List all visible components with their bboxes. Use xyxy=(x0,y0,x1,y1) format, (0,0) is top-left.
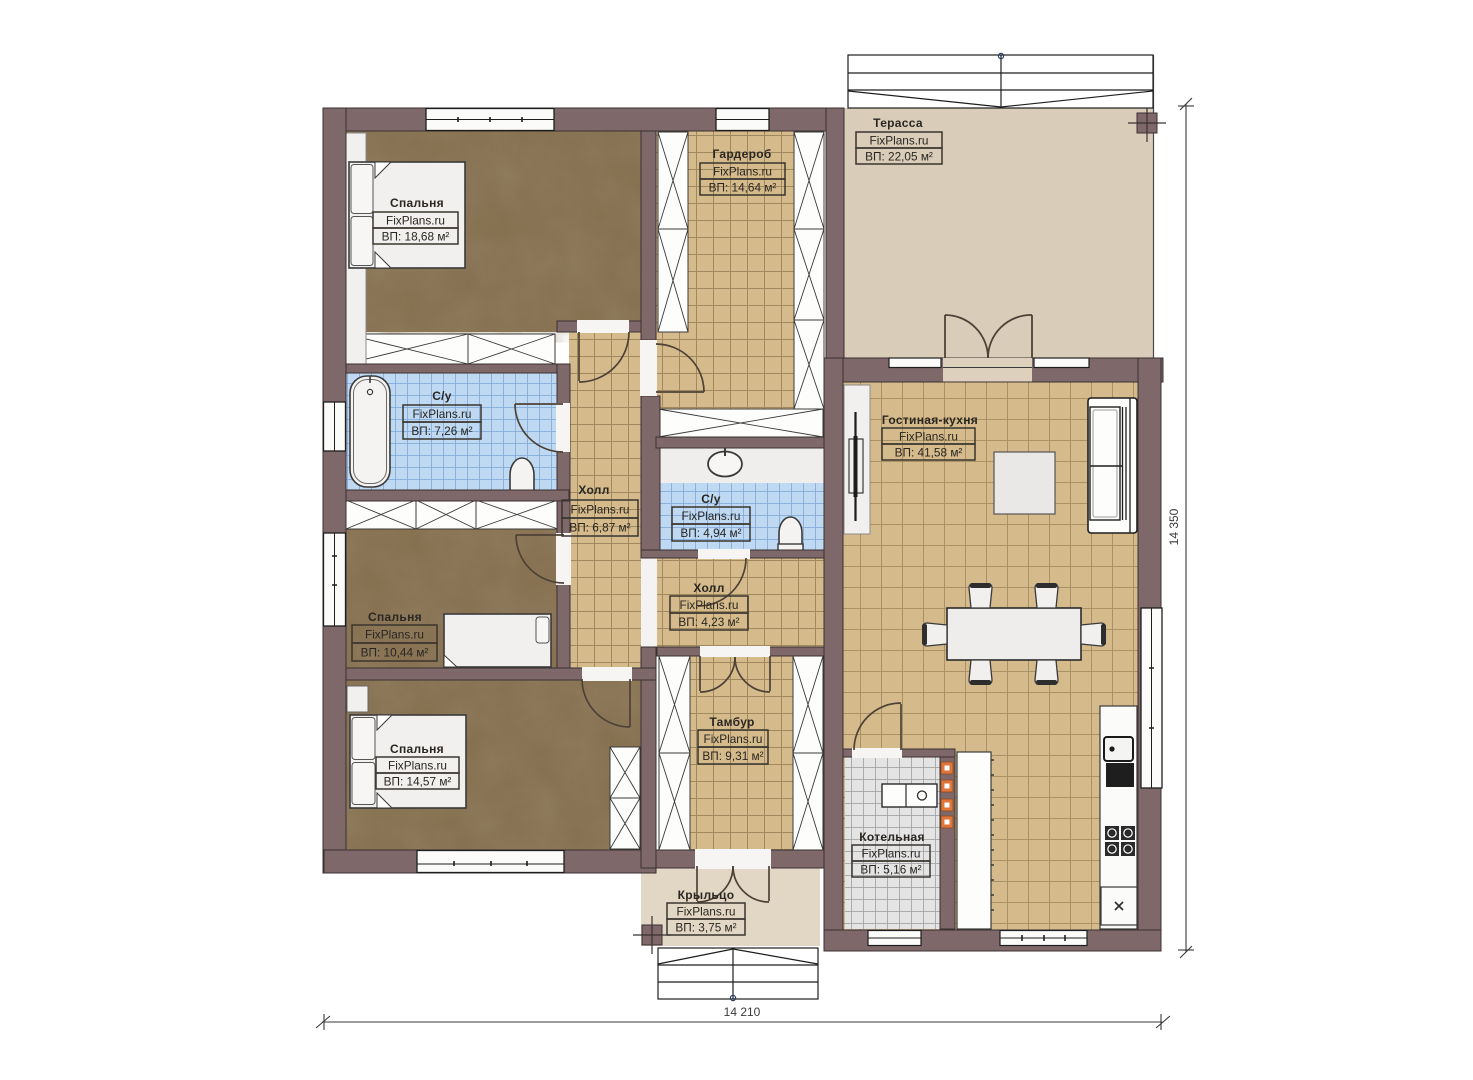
svg-text:ВП: 9,31 м²: ВП: 9,31 м² xyxy=(702,749,763,763)
svg-text:Тамбур: Тамбур xyxy=(709,715,754,729)
svg-text:FixPlans.ru: FixPlans.ru xyxy=(386,214,445,228)
svg-text:ВП: 10,44 м²: ВП: 10,44 м² xyxy=(361,646,429,660)
svg-text:Гардероб: Гардероб xyxy=(712,147,771,161)
svg-text:ВП: 18,68 м²: ВП: 18,68 м² xyxy=(382,230,450,244)
svg-text:Гостиная-кухня: Гостиная-кухня xyxy=(882,413,978,427)
svg-text:Спальня: Спальня xyxy=(390,742,444,756)
svg-text:14 210: 14 210 xyxy=(724,1005,761,1019)
svg-text:ВП: 14,57 м²: ВП: 14,57 м² xyxy=(384,775,452,789)
svg-text:С/у: С/у xyxy=(432,389,452,403)
svg-text:ВП: 6,87 м²: ВП: 6,87 м² xyxy=(569,521,630,535)
svg-text:Спальня: Спальня xyxy=(368,610,422,624)
svg-text:FixPlans.ru: FixPlans.ru xyxy=(365,628,424,642)
svg-text:FixPlans.ru: FixPlans.ru xyxy=(869,134,928,148)
svg-text:ВП: 7,26 м²: ВП: 7,26 м² xyxy=(411,424,472,438)
svg-text:ВП: 4,23 м²: ВП: 4,23 м² xyxy=(678,615,739,629)
svg-text:FixPlans.ru: FixPlans.ru xyxy=(861,847,920,861)
svg-text:FixPlans.ru: FixPlans.ru xyxy=(412,407,471,421)
svg-text:FixPlans.ru: FixPlans.ru xyxy=(899,430,958,444)
svg-text:FixPlans.ru: FixPlans.ru xyxy=(676,905,735,919)
svg-text:FixPlans.ru: FixPlans.ru xyxy=(388,759,447,773)
svg-text:ВП: 4,94 м²: ВП: 4,94 м² xyxy=(680,526,741,540)
svg-text:FixPlans.ru: FixPlans.ru xyxy=(703,732,762,746)
svg-text:FixPlans.ru: FixPlans.ru xyxy=(681,509,740,523)
svg-text:Крыльцо: Крыльцо xyxy=(678,888,735,902)
svg-text:FixPlans.ru: FixPlans.ru xyxy=(713,165,772,179)
svg-text:ВП: 14,64 м²: ВП: 14,64 м² xyxy=(709,181,777,195)
svg-text:Холл: Холл xyxy=(578,483,609,497)
svg-text:ВП: 3,75 м²: ВП: 3,75 м² xyxy=(675,921,736,935)
svg-text:ВП: 22,05 м²: ВП: 22,05 м² xyxy=(865,150,933,164)
svg-text:ВП: 41,58 м²: ВП: 41,58 м² xyxy=(895,446,963,460)
svg-text:ВП: 5,16 м²: ВП: 5,16 м² xyxy=(860,863,921,877)
svg-text:FixPlans.ru: FixPlans.ru xyxy=(679,598,738,612)
svg-text:Котельная: Котельная xyxy=(859,830,925,844)
svg-text:С/у: С/у xyxy=(701,492,721,506)
svg-text:Спальня: Спальня xyxy=(390,196,444,210)
svg-text:Холл: Холл xyxy=(693,581,724,595)
svg-text:Терасса: Терасса xyxy=(873,116,923,130)
svg-text:FixPlans.ru: FixPlans.ru xyxy=(570,503,629,517)
svg-text:14 350: 14 350 xyxy=(1167,508,1181,545)
